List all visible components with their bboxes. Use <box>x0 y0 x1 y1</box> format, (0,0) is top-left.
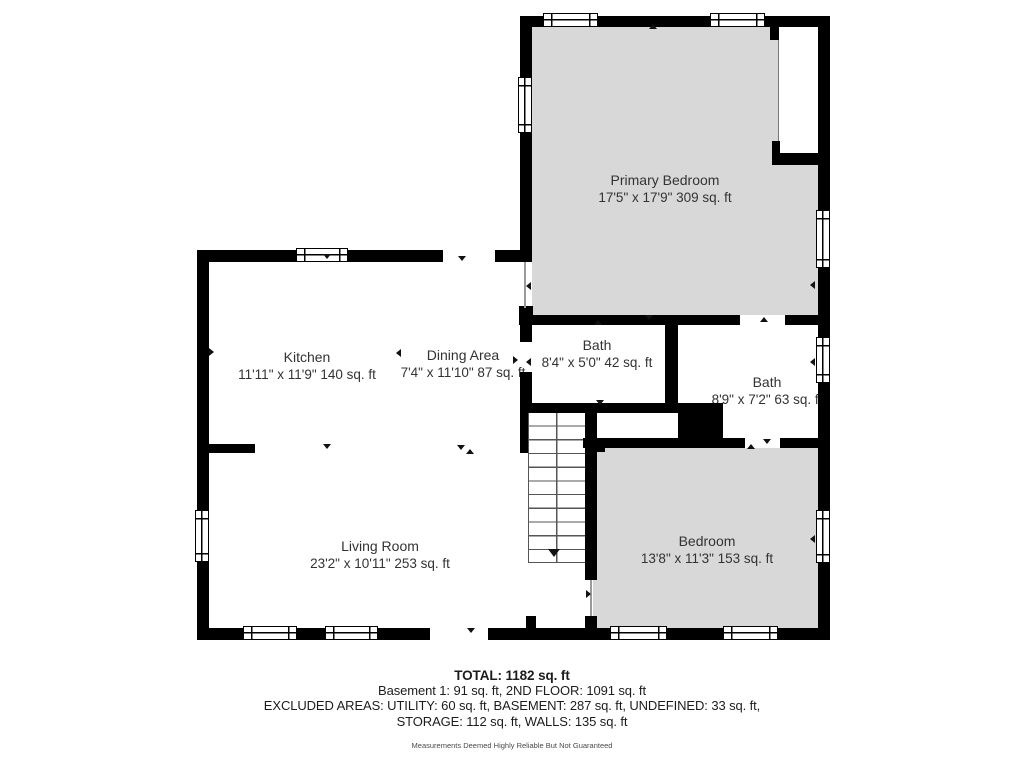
wall <box>772 153 818 165</box>
excluded-areas: EXCLUDED AREAS: UTILITY: 60 sq. ft, BASE… <box>0 698 1024 713</box>
wall <box>583 438 745 448</box>
window <box>723 626 778 640</box>
room-dimensions: 23'2" x 10'11" 253 sq. ft <box>310 555 450 572</box>
total-area: TOTAL: 1182 sq. ft <box>0 668 1024 683</box>
wall <box>520 372 532 403</box>
door-marker <box>513 356 518 364</box>
wall <box>197 250 209 510</box>
room-dimensions: 11'11" x 11'9" 140 sq. ft <box>238 366 376 383</box>
door-marker <box>810 535 815 543</box>
door-marker <box>763 439 771 444</box>
door-marker <box>645 315 653 320</box>
wall <box>665 325 678 413</box>
window <box>543 13 598 27</box>
window <box>195 510 209 562</box>
room-dimensions: 13'8" x 11'3" 153 sq. ft <box>641 550 773 567</box>
room-label-bath-1: Bath 8'4" x 5'0" 42 sq. ft <box>542 337 653 371</box>
room-name: Bath <box>712 374 823 391</box>
wall <box>495 250 520 262</box>
window <box>816 210 830 268</box>
room-name: Bath <box>542 337 653 354</box>
primary-bedroom-floor <box>532 27 818 315</box>
floor-areas: Basement 1: 91 sq. ft, 2ND FLOOR: 1091 s… <box>0 683 1024 698</box>
wall <box>520 413 528 453</box>
room-label-kitchen: Kitchen 11'11" x 11'9" 140 sq. ft <box>238 349 376 383</box>
window <box>325 626 378 640</box>
wall <box>585 403 597 580</box>
room-name: Primary Bedroom <box>598 172 731 189</box>
room-dimensions: 8'4" x 5'0" 42 sq. ft <box>542 354 653 371</box>
disclaimer: Measurements Deemed Highly Reliable But … <box>0 738 1024 753</box>
wall <box>818 383 830 510</box>
wall <box>526 616 536 628</box>
wall <box>197 444 255 453</box>
door-marker <box>596 400 604 405</box>
window <box>710 13 765 27</box>
room-name: Dining Area <box>401 347 526 364</box>
wall <box>785 315 818 325</box>
door-marker <box>458 256 466 261</box>
room-dimensions: 17'5" x 17'9" 309 sq. ft <box>598 189 731 206</box>
wall <box>780 438 818 448</box>
door-marker <box>747 444 755 449</box>
room-name: Kitchen <box>238 349 376 366</box>
room-label-bath-2: Bath 8'9" x 7'2" 63 sq. ft <box>712 374 823 408</box>
room-name: Bedroom <box>641 533 773 550</box>
wall <box>197 628 243 640</box>
room-label-primary-bedroom: Primary Bedroom 17'5" x 17'9" 309 sq. ft <box>598 172 731 206</box>
wall <box>520 317 532 342</box>
window <box>816 510 830 563</box>
wall <box>197 250 296 262</box>
door-marker <box>810 281 815 289</box>
door-marker <box>323 444 331 449</box>
door-marker <box>323 254 331 259</box>
wall <box>532 315 740 325</box>
wall <box>585 616 597 628</box>
room-label-living-room: Living Room 23'2" x 10'11" 253 sq. ft <box>310 538 450 572</box>
wall <box>520 16 532 77</box>
wall <box>818 16 830 210</box>
stair-direction-arrow <box>548 549 560 557</box>
door-marker <box>396 349 401 357</box>
room-dimensions: 8'9" x 7'2" 63 sq. ft <box>712 391 823 408</box>
wall <box>348 250 443 262</box>
window <box>243 626 297 640</box>
excluded-areas-continued: STORAGE: 112 sq. ft, WALLS: 135 sq. ft <box>0 714 1024 729</box>
staircase <box>528 413 585 563</box>
wall <box>378 628 430 640</box>
window <box>518 77 532 133</box>
door-marker <box>466 449 474 454</box>
wall <box>818 268 830 337</box>
window <box>296 248 348 262</box>
wall <box>597 443 605 452</box>
wall <box>520 133 532 262</box>
room-name: Living Room <box>310 538 450 555</box>
window <box>816 337 830 383</box>
wall <box>770 27 779 40</box>
door-marker <box>760 317 768 322</box>
closet-notch <box>778 27 818 153</box>
door-marker <box>649 24 657 29</box>
room-dimensions: 7'4" x 11'10" 87 sq. ft <box>401 364 526 381</box>
door-marker <box>526 358 531 366</box>
wall <box>667 628 723 640</box>
opening-line <box>590 580 592 616</box>
wall <box>297 628 325 640</box>
door-marker <box>810 358 815 366</box>
floor-plan-page: Primary Bedroom 17'5" x 17'9" 309 sq. ft… <box>0 0 1024 768</box>
window <box>610 626 667 640</box>
summary-footer: TOTAL: 1182 sq. ft Basement 1: 91 sq. ft… <box>0 668 1024 753</box>
door-marker <box>594 320 602 325</box>
wall <box>818 563 830 640</box>
door-marker <box>457 445 465 450</box>
door-marker <box>467 628 475 633</box>
door-marker <box>586 590 591 598</box>
door-marker <box>209 348 214 356</box>
wall <box>488 628 610 640</box>
room-label-bedroom: Bedroom 13'8" x 11'3" 153 sq. ft <box>641 533 773 567</box>
room-label-dining-area: Dining Area 7'4" x 11'10" 87 sq. ft <box>401 347 526 381</box>
door-marker <box>526 282 531 290</box>
